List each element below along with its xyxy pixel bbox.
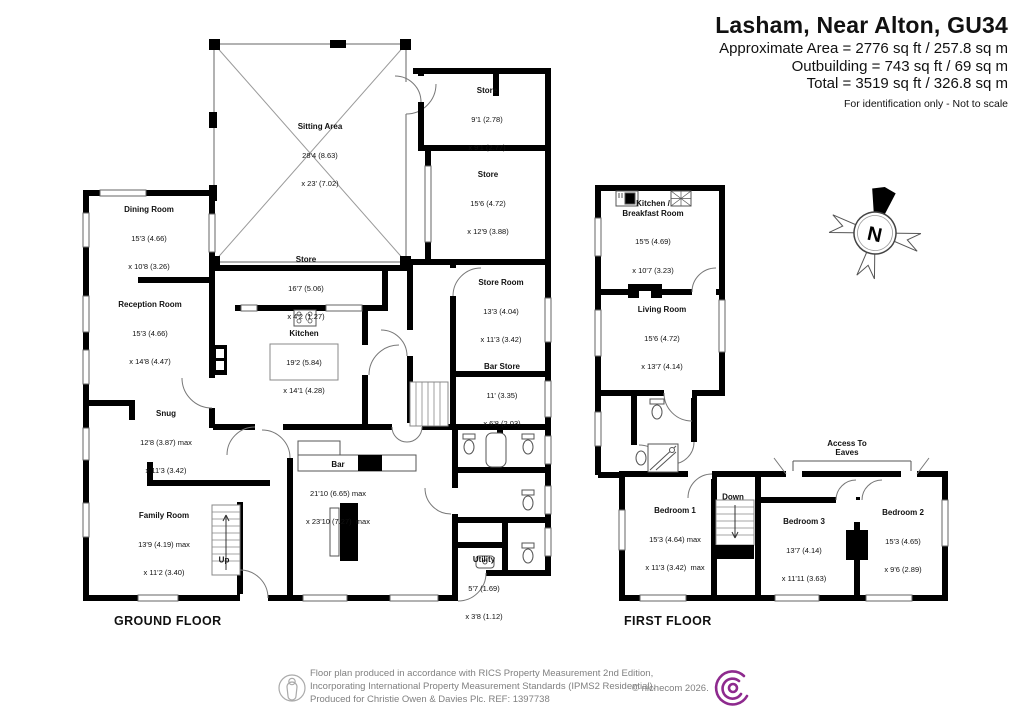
room-name: Store — [287, 255, 324, 265]
room-dims: x 11'2 (3.40) — [138, 568, 190, 578]
room-dims: x 23'10 (7.27) max — [306, 517, 370, 527]
room-dims: 28'4 (8.63) — [298, 150, 343, 160]
footer-line-2: Incorporating International Property Mea… — [310, 680, 655, 693]
toilet-icon — [522, 490, 534, 510]
room-name: Bedroom 3 — [782, 517, 827, 527]
room-dims: 15'6 (4.72) — [467, 198, 508, 208]
first-floor-title: FIRST FLOOR — [624, 614, 712, 628]
room-name: Snug — [140, 409, 192, 419]
room-label-kitchen: Kitchen 19'2 (5.84) x 14'1 (4.28) — [283, 310, 324, 415]
room-label-sitting-area: Sitting Area 28'4 (8.63) x 23' (7.02) — [298, 103, 343, 208]
room-dims: x 10'8 (3.26) — [124, 262, 174, 272]
down-label: Down — [722, 493, 744, 502]
room-name: Dining Room — [124, 205, 174, 215]
room-dims: 16'7 (5.06) — [287, 283, 324, 293]
nichecom-logo — [716, 671, 747, 704]
room-name: Living Room — [638, 305, 686, 315]
sink-icon — [636, 451, 646, 465]
stairs-corridor — [410, 382, 448, 426]
room-dims: 5'7 (1.69) — [465, 583, 502, 593]
room-label-family-room: Family Room 13'9 (4.19) max x 11'2 (3.40… — [138, 492, 190, 597]
room-label-utility: Utility 5'7 (1.69) x 3'8 (1.12) — [465, 536, 502, 641]
floorplan-page: Lasham, Near Alton, GU34 Approximate Are… — [0, 0, 1024, 724]
room-dims: 13'9 (4.19) max — [138, 539, 190, 549]
compass-icon: N — [822, 178, 929, 287]
eaves-bracket — [793, 461, 911, 471]
room-name: Store — [467, 170, 508, 180]
room-name: Bar Store — [483, 362, 520, 372]
room-label-kitchen-breakfast: Kitchen / Breakfast Room 15'5 (4.69) x 1… — [622, 180, 683, 294]
room-label-dining-room: Dining Room 15'3 (4.66) x 10'8 (3.26) — [124, 186, 174, 291]
ground-floor-title: GROUND FLOOR — [114, 614, 222, 628]
room-label-living-room: Living Room 15'6 (4.72) x 13'7 (4.14) — [638, 286, 686, 391]
door-gap — [402, 82, 410, 114]
room-label-store-2: Store 15'6 (4.72) x 12'9 (3.88) — [467, 151, 508, 256]
room-name: Bedroom 2 — [882, 508, 924, 518]
copyright-notice: © nichecom 2026. — [632, 683, 709, 694]
room-dims: x 12'9 (3.88) — [467, 227, 508, 237]
room-label-bedroom-3: Bedroom 3 13'7 (4.14) x 11'11 (3.63) — [782, 498, 827, 603]
toilet-icon — [650, 399, 664, 419]
stairs-up — [212, 505, 240, 575]
bathroom-fixtures — [636, 399, 678, 472]
room-dims: 15'3 (4.65) — [882, 536, 924, 546]
room-dims: 13'3 (4.04) — [478, 306, 523, 316]
room-name: Store Room — [478, 278, 523, 288]
room-dims: 15'3 (4.66) — [118, 328, 182, 338]
room-label-bar-store: Bar Store 11' (3.35) x 6'8 (2.03) — [483, 343, 520, 448]
room-name: Store — [468, 86, 505, 96]
access-to-eaves-label: Access To Eaves — [827, 439, 866, 457]
room-label-bedroom-1: Bedroom 1 15'3 (4.64) max x 11'3 (3.42) … — [645, 487, 704, 592]
shower-icon — [648, 444, 678, 472]
room-dims: x 9'6 (2.89) — [882, 565, 924, 575]
footer-disclaimer: Floor plan produced in accordance with R… — [310, 667, 655, 706]
room-dims: x 6'8 (2.03) — [483, 419, 520, 429]
room-dims: 19'2 (5.84) — [283, 357, 324, 367]
room-dims: x 23' (7.02) — [298, 179, 343, 189]
toilet-icon — [522, 543, 534, 563]
room-dims: 11' (3.35) — [483, 390, 520, 400]
toilet-icon — [463, 434, 475, 454]
room-name: Utility — [465, 555, 502, 565]
room-label-bar: Bar 21'10 (6.65) max x 23'10 (7.27) max — [306, 441, 370, 546]
room-dims: 21'10 (6.65) max — [306, 488, 370, 498]
room-name: Bedroom 1 — [645, 506, 704, 516]
room-dims: 15'3 (4.66) — [124, 233, 174, 243]
room-label-snug: Snug 12'8 (3.87) max x 11'3 (3.42) — [140, 390, 192, 495]
room-dims: 13'7 (4.14) — [782, 545, 827, 555]
room-dims: 12'8 (3.87) max — [140, 437, 192, 447]
room-name: Sitting Area — [298, 122, 343, 132]
footer-line-1: Floor plan produced in accordance with R… — [310, 667, 655, 680]
room-name: Kitchen / Breakfast Room — [622, 199, 683, 218]
room-dims: 9'1 (2.78) — [468, 114, 505, 124]
room-label-reception-room: Reception Room 15'3 (4.66) x 14'8 (4.47) — [118, 281, 182, 386]
room-name: Reception Room — [118, 300, 182, 310]
room-name: Kitchen — [283, 329, 324, 339]
room-dims: x 10'7 (3.23) — [622, 266, 683, 276]
room-dims: 15'5 (4.69) — [622, 237, 683, 247]
room-dims: 15'6 (4.72) — [638, 333, 686, 343]
room-dims: x 11'3 (3.42) max — [645, 563, 704, 573]
room-dims: 15'3 (4.64) max — [645, 534, 704, 544]
footer-line-3: Produced for Christie Owen & Davies Plc.… — [310, 693, 655, 706]
room-label-bedroom-2: Bedroom 2 15'3 (4.65) x 9'6 (2.89) — [882, 489, 924, 594]
room-dims: x 3'8 (1.12) — [465, 612, 502, 622]
room-dims: x 11'11 (3.63) — [782, 574, 827, 584]
room-dims: x 13'7 (4.14) — [638, 362, 686, 372]
room-dims: x 14'8 (4.47) — [118, 357, 182, 367]
room-name: Bar — [306, 460, 370, 470]
room-dims: x 14'1 (4.28) — [283, 386, 324, 396]
person-icon — [279, 675, 305, 701]
toilet-icon — [522, 434, 534, 454]
room-name: Family Room — [138, 511, 190, 521]
room-dims: x 11'3 (3.42) — [140, 466, 192, 476]
up-label: Up — [219, 556, 230, 565]
stairs-down — [714, 500, 754, 559]
